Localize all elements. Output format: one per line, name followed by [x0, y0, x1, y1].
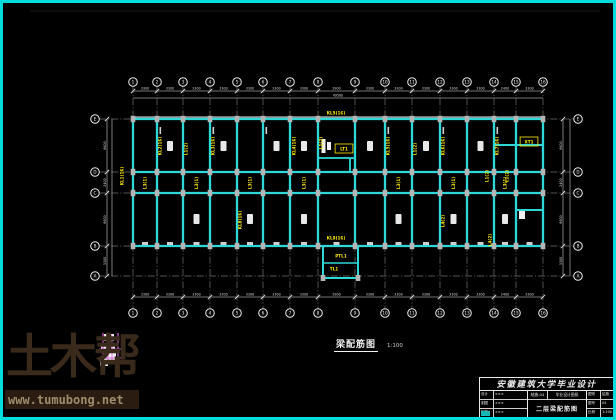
dim-text: 6 — [262, 80, 265, 85]
dim-text: 2400 — [103, 178, 107, 186]
watermark-url-bar: www.tumubong.net — [5, 390, 139, 409]
dim-text: A — [577, 274, 580, 279]
dim-text: 3300 — [525, 86, 533, 90]
beam-label: KL3(16) — [211, 137, 216, 156]
dim-text: 16 — [540, 311, 546, 316]
dim-text: B — [577, 244, 580, 249]
dim-text: 6600 — [103, 141, 107, 149]
dim-text: 3300 — [366, 86, 374, 90]
beam-label: KL5(16) — [327, 111, 346, 116]
meta-value: 1:100 — [601, 409, 613, 417]
dim-text: 3 — [182, 311, 185, 316]
beam-label: KL5(16) — [386, 137, 391, 156]
title-block-middle-top: 结施-04 毕业设计图纸 — [528, 391, 586, 400]
dim-text: 5 — [236, 80, 239, 85]
dim-text: 3300 — [219, 86, 227, 90]
dim-text: 3300 — [422, 86, 430, 90]
dim-text: 14 — [491, 311, 497, 316]
dim-text: 3300 — [300, 292, 308, 296]
title-block-row: 图号 04 — [587, 400, 613, 409]
title-block-header: 安徽建筑大学毕业设计 — [480, 378, 613, 391]
dim-text: 3300 — [449, 86, 457, 90]
dim-text: 3900 — [332, 292, 340, 296]
dim-text: 3300 — [246, 86, 254, 90]
dim-text: 9 — [354, 311, 357, 316]
dim-text: 11 — [409, 80, 415, 85]
beam-label: L1(2) — [485, 170, 490, 182]
dim-text: 3300 — [525, 292, 533, 296]
dim-text: 3300 — [166, 292, 174, 296]
meta-label: 比例 — [587, 409, 601, 417]
dim-text: 3300 — [103, 257, 107, 265]
meta-value: 04 — [601, 400, 613, 408]
dim-text: 3300 — [422, 292, 430, 296]
dim-text: 4 — [209, 311, 212, 316]
dim-text: 3300 — [476, 292, 484, 296]
beam-label: L3(1) — [396, 177, 401, 189]
dim-text: 3300 — [246, 292, 254, 296]
beam-label: L3(1) — [143, 177, 148, 189]
dim-text: C — [577, 191, 580, 196]
dim-text: E — [577, 117, 580, 122]
dim-text: 7 — [289, 311, 292, 316]
dim-text: 14 — [491, 80, 497, 85]
dim-text: 3300 — [394, 292, 402, 296]
dim-text: 3300 — [366, 292, 374, 296]
dim-text: 3300 — [192, 292, 200, 296]
dim-text: 6600 — [559, 215, 563, 223]
beam-label: KL2(16) — [158, 137, 163, 156]
drawing-number: 结施-04 — [528, 391, 548, 399]
drawing-title-scale: 1:100 — [387, 343, 403, 349]
beam-label: L1(2) — [184, 143, 189, 155]
title-block-accent-chip — [481, 411, 490, 416]
dim-text: 2 — [156, 311, 159, 316]
cad-screenshot: 3300330033003300330033003300330033003300… — [0, 0, 616, 420]
title-block-row: 图别 结施 — [587, 391, 613, 400]
dim-text: A — [94, 274, 97, 279]
dim-text: 3300 — [192, 86, 200, 90]
dim-text: 2400 — [501, 292, 509, 296]
beam-label: L3(1) — [302, 177, 307, 189]
dim-text: 10 — [382, 311, 388, 316]
dim-text: 3 — [182, 80, 185, 85]
dim-text: 2400 — [559, 178, 563, 186]
beam-label: L3(1) — [248, 177, 253, 189]
beam-label: KL4(16) — [292, 137, 297, 156]
dim-text: E — [94, 117, 97, 122]
dim-text: 3900 — [332, 86, 340, 90]
beam-label: L3(1) — [503, 177, 508, 189]
sign-value: ××× — [494, 409, 527, 417]
dim-text: 5 — [236, 311, 239, 316]
title-block-row: 制图 ××× — [480, 400, 527, 409]
title-block-row: 设计 ××× — [480, 391, 527, 400]
dim-text: 6 — [262, 311, 265, 316]
dim-text: 3300 — [219, 292, 227, 296]
title-block-row: 比例 1:100 — [587, 409, 613, 417]
beam-label: KL9(16) — [327, 236, 346, 241]
dim-text: D — [93, 170, 96, 175]
beam-label: L4(2) — [488, 234, 493, 246]
beam-label: L4(2) — [441, 215, 446, 227]
drawing-name: 二层梁配筋图 — [528, 400, 586, 417]
meta-label: 图号 — [587, 400, 601, 408]
dim-text: 8 — [317, 311, 320, 316]
meta-value: 结施 — [601, 391, 613, 399]
dim-text: C — [94, 191, 97, 196]
project-name: 毕业设计图纸 — [548, 391, 586, 399]
drawing-title: 梁配筋图 1:100 — [334, 337, 403, 352]
title-block: 安徽建筑大学毕业设计 设计 ××× 制图 ××× 审核 ××× 结施-04 — [479, 377, 614, 418]
drawing-title-text: 梁配筋图 — [334, 337, 378, 352]
dim-text: 3300 — [394, 86, 402, 90]
annotation-blobs — [142, 127, 533, 245]
dim-text: 3300 — [272, 86, 280, 90]
beam-label: L3(1) — [194, 177, 199, 189]
dim-text: 13 — [464, 311, 470, 316]
beam-label: TL1 — [330, 267, 339, 272]
beam-label: KL1(16) — [120, 167, 125, 186]
dim-text: 2400 — [501, 86, 509, 90]
dim-text: 7 — [289, 80, 292, 85]
dim-text: 6600 — [103, 215, 107, 223]
dim-text: 4 — [209, 80, 212, 85]
watermark-url: www.tumubong.net — [5, 393, 124, 407]
dim-text: 15 — [513, 311, 519, 316]
sign-label: 设计 — [480, 391, 494, 399]
dim-text: 3300 — [300, 86, 308, 90]
beam-label: L1(2) — [319, 137, 324, 149]
sign-label: 制图 — [480, 400, 494, 408]
sign-value: ××× — [494, 391, 527, 399]
dim-text: 2 — [156, 80, 159, 85]
watermark-logo: 土木帮 — [6, 334, 138, 381]
dim-text: 3300 — [272, 292, 280, 296]
dim-text: 3300 — [476, 86, 484, 90]
dim-text: 49500 — [333, 94, 344, 98]
title-block-middle: 结施-04 毕业设计图纸 二层梁配筋图 — [528, 391, 587, 417]
dim-text: 15 — [513, 80, 519, 85]
dim-text: 10 — [382, 80, 388, 85]
beam-label: KL8(16) — [238, 211, 243, 230]
dim-text: 3300 — [449, 292, 457, 296]
sign-value: ××× — [494, 400, 527, 408]
dim-text: 6600 — [559, 141, 563, 149]
dim-text: 3300 — [559, 257, 563, 265]
dim-text: 12 — [437, 311, 443, 316]
dim-text: 16 — [540, 80, 546, 85]
beam-label: L3(1) — [451, 177, 456, 189]
dim-text: 9 — [354, 80, 357, 85]
beam-label: L1(2) — [413, 143, 418, 155]
dim-text: D — [576, 170, 579, 175]
dim-text: 3300 — [166, 86, 174, 90]
dim-text: 11 — [409, 311, 415, 316]
dim-text: 8 — [317, 80, 320, 85]
dim-text: 12 — [437, 80, 443, 85]
title-block-body: 设计 ××× 制图 ××× 审核 ××× 结施-04 毕业设计图纸 二层梁配筋图 — [480, 391, 613, 417]
beam-label: KL7(16) — [495, 137, 500, 156]
meta-label: 图别 — [587, 391, 601, 399]
dim-text: B — [94, 244, 97, 249]
beam-label: PTL1 — [335, 254, 347, 259]
beam-label: XT1 — [525, 140, 534, 145]
beam-label: LT1 — [340, 147, 348, 152]
title-block-meta: 图别 结施 图号 04 比例 1:100 — [587, 391, 613, 417]
dim-text: 3300 — [141, 86, 149, 90]
dim-text: 13 — [464, 80, 470, 85]
dim-text: 1 — [132, 80, 135, 85]
beam-label: KL6(16) — [441, 137, 446, 156]
dim-text: 3300 — [141, 292, 149, 296]
dim-text: 1 — [132, 311, 135, 316]
